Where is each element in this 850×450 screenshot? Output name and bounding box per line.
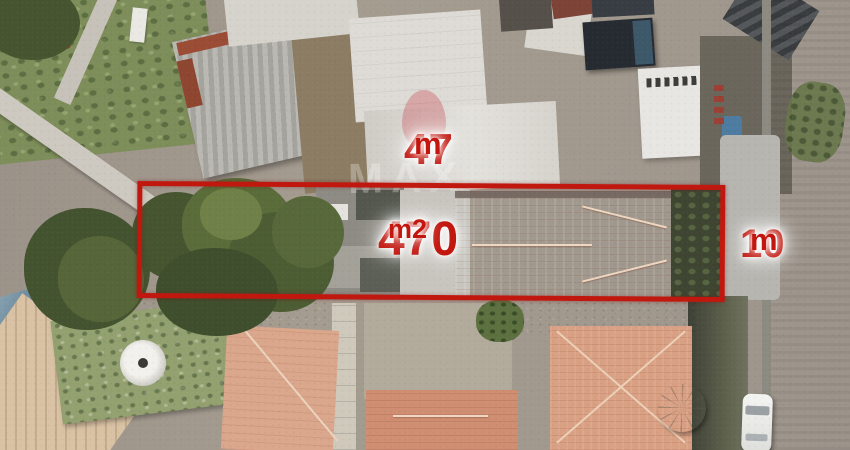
hip-roof [366, 390, 518, 450]
roof-ridge [393, 415, 487, 417]
truck-cab [632, 20, 653, 65]
white-car [741, 393, 773, 450]
shadow-wall [688, 296, 748, 450]
depth-unit: m [750, 224, 778, 255]
bush [476, 300, 524, 342]
truck [582, 18, 655, 71]
frontage-unit: m [414, 128, 442, 159]
car-windshield [745, 406, 769, 416]
satellite-dish [658, 384, 706, 432]
pavement [720, 135, 780, 300]
area-unit: m2 [388, 216, 427, 243]
roof-marking [646, 76, 696, 88]
dark-structure [499, 0, 553, 32]
aerial-photo: MAX 47 m 470 m2 10 m [0, 0, 850, 450]
red-clutter [714, 82, 724, 124]
vent-center [138, 358, 148, 368]
pink-tiled-roof [221, 325, 339, 450]
car-rear-glass [745, 434, 767, 442]
roof-ridge [240, 325, 338, 441]
dark-structure [591, 0, 654, 18]
roof-vent [120, 340, 166, 386]
tree-canopy-blob [58, 236, 144, 322]
